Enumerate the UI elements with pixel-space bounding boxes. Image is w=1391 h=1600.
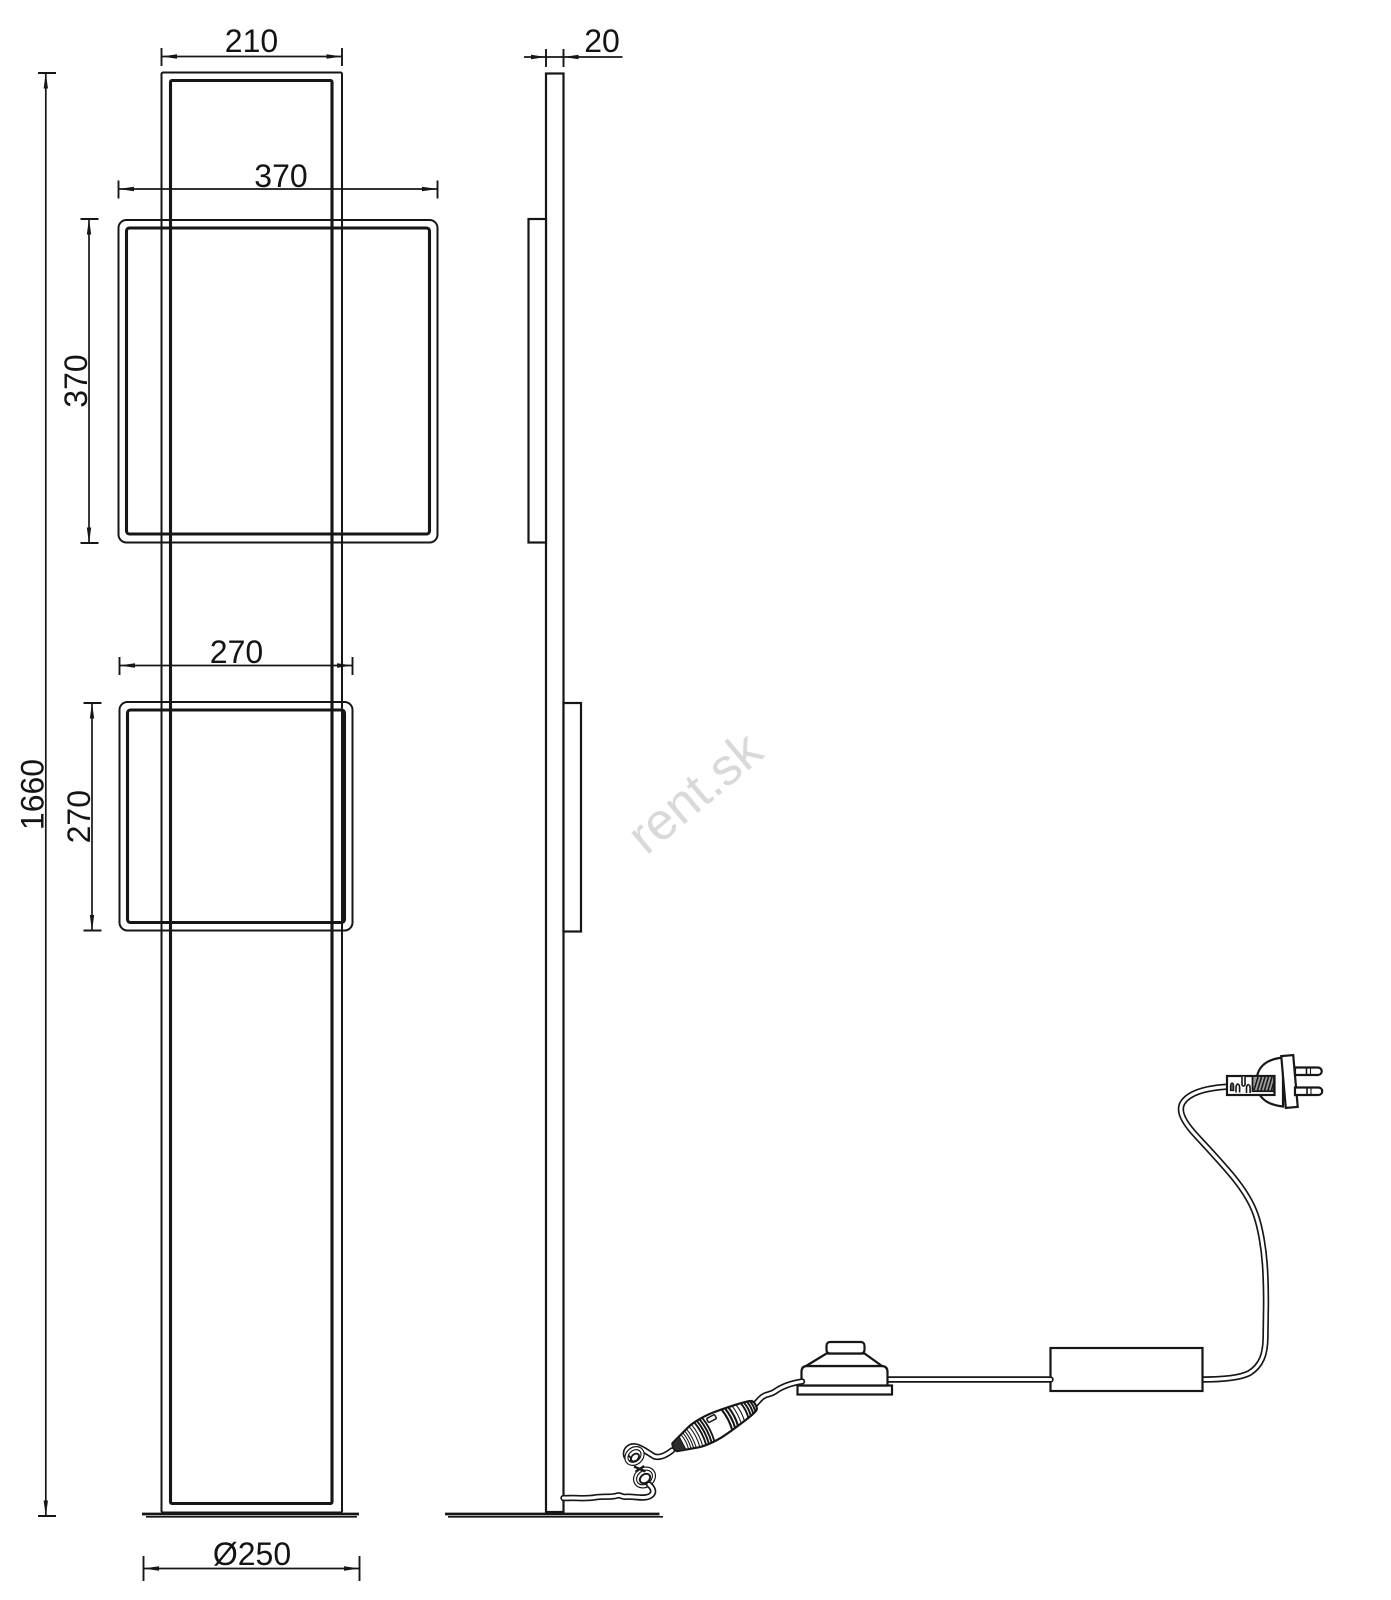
svg-text:270: 270 — [61, 790, 97, 843]
svg-text:270: 270 — [210, 634, 263, 670]
svg-text:Ø250: Ø250 — [213, 1536, 291, 1572]
svg-text:210: 210 — [225, 23, 278, 59]
svg-text:1660: 1660 — [15, 759, 51, 830]
svg-text:370: 370 — [58, 354, 94, 407]
svg-text:rent.sk: rent.sk — [617, 720, 775, 865]
svg-text:370: 370 — [254, 158, 307, 194]
svg-text:20: 20 — [584, 23, 620, 59]
